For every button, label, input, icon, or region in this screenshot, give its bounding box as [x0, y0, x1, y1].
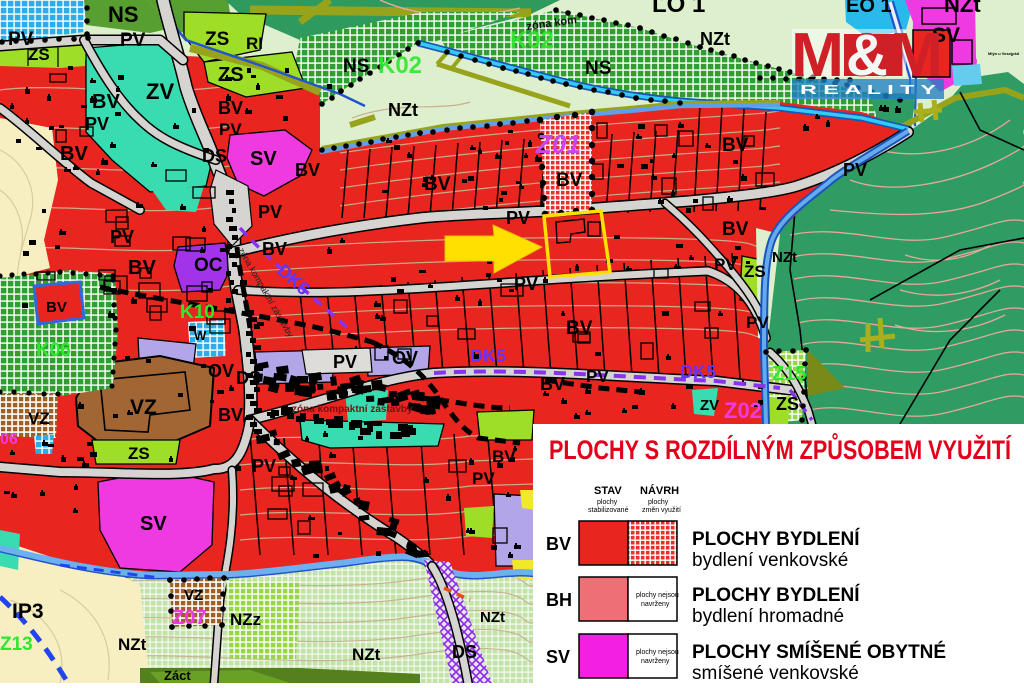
svg-text:VZ: VZ	[184, 587, 203, 604]
svg-text:NZt: NZt	[352, 645, 381, 664]
svg-text:SV: SV	[140, 513, 167, 535]
svg-text:BV: BV	[60, 143, 88, 165]
svg-text:BV: BV	[424, 174, 451, 195]
svg-text:ZS: ZS	[128, 444, 150, 463]
svg-text:BV: BV	[722, 135, 749, 156]
svg-text:BV: BV	[92, 91, 120, 113]
svg-text:NZt: NZt	[388, 100, 418, 120]
svg-text:navrženy: navrženy	[641, 658, 670, 665]
svg-text:PV: PV	[714, 255, 737, 274]
svg-text:Z01: Z01	[535, 129, 581, 159]
svg-text:PLOCHY S ROZDÍLNÝM ZPŮSOBEM VY: PLOCHY S ROZDÍLNÝM ZPŮSOBEM VYUŽITÍ	[549, 432, 1012, 465]
svg-text:DK5: DK5	[680, 362, 716, 382]
svg-text:K10: K10	[180, 302, 215, 323]
svg-text:RI: RI	[246, 34, 263, 53]
svg-text:&: &	[846, 23, 888, 88]
svg-text:ĽO 1: ĽO 1	[652, 0, 705, 18]
svg-text:bydlení hromadné: bydlení hromadné	[692, 606, 844, 627]
svg-text:PV: PV	[514, 274, 538, 294]
svg-text:PLOCHY BYDLENÍ: PLOCHY BYDLENÍ	[692, 528, 860, 550]
svg-text:NS: NS	[108, 2, 139, 27]
svg-text:K02: K02	[378, 52, 422, 79]
svg-text:PLOCHY SMÍŠENÉ OBYTNÉ: PLOCHY SMÍŠENÉ OBYTNÉ	[692, 641, 946, 663]
svg-text:BV: BV	[46, 299, 67, 316]
svg-text:BV: BV	[492, 447, 516, 466]
svg-text:Z02: Z02	[724, 398, 762, 423]
svg-text:plochy: plochy	[597, 499, 618, 506]
svg-text:DK5: DK5	[470, 346, 506, 366]
svg-text:BV: BV	[295, 160, 320, 180]
svg-text:OV: OV	[392, 348, 418, 368]
svg-text:BV: BV	[218, 405, 243, 425]
svg-text:PV: PV	[120, 30, 146, 51]
svg-text:ZV: ZV	[700, 397, 719, 414]
svg-text:BV: BV	[128, 257, 156, 279]
svg-text:smíšené venkovské: smíšené venkovské	[692, 663, 859, 683]
svg-text:BV: BV	[540, 374, 565, 394]
svg-text:Z13: Z13	[0, 634, 33, 655]
svg-text:NZt: NZt	[118, 635, 147, 654]
svg-text:Z15: Z15	[772, 363, 806, 385]
svg-text:PV: PV	[258, 202, 282, 222]
svg-text:PV: PV	[85, 114, 109, 134]
svg-text:K02: K02	[510, 27, 554, 54]
svg-text:ZS: ZS	[744, 262, 766, 281]
svg-text:PV: PV	[333, 352, 357, 372]
svg-text:K06: K06	[36, 340, 71, 361]
svg-text:NZt: NZt	[944, 0, 981, 17]
svg-text:NÁVRH: NÁVRH	[640, 484, 679, 497]
svg-text:NZt: NZt	[700, 29, 730, 49]
svg-text:Záct: Záct	[164, 668, 191, 683]
svg-text:PV: PV	[843, 160, 867, 180]
svg-text:06: 06	[0, 431, 18, 448]
svg-text:Z07: Z07	[172, 607, 206, 629]
svg-text:PV: PV	[110, 227, 134, 247]
svg-text:zóna kompaktní zástavby: zóna kompaktní zástavby	[292, 404, 413, 415]
svg-text:změn využití: změn využití	[642, 507, 681, 514]
svg-text:BV: BV	[556, 170, 583, 191]
svg-text:NS: NS	[343, 56, 369, 77]
svg-text:PV: PV	[252, 456, 276, 476]
svg-text:BV: BV	[722, 219, 749, 240]
svg-text:PV: PV	[506, 208, 530, 228]
svg-text:bydlení venkovské: bydlení venkovské	[692, 550, 848, 571]
svg-text:BH: BH	[546, 590, 572, 610]
svg-text:navrženy: navrženy	[641, 601, 670, 608]
svg-text:BV: BV	[546, 534, 571, 554]
svg-text:PV: PV	[746, 313, 769, 332]
svg-text:ZS: ZS	[205, 29, 229, 50]
svg-text:VZ: VZ	[28, 409, 50, 428]
svg-text:BV: BV	[566, 318, 593, 339]
svg-text:R E A L I T Y: R E A L I T Y	[800, 82, 937, 97]
svg-text:OC: OC	[194, 255, 223, 276]
svg-text:BV: BV	[218, 98, 243, 118]
svg-text:plochy nejsou: plochy nejsou	[636, 592, 679, 599]
svg-text:SV: SV	[546, 647, 570, 667]
svg-text:W: W	[194, 328, 207, 343]
svg-text:PV: PV	[472, 469, 495, 488]
svg-text:DS: DS	[202, 146, 227, 166]
svg-text:EO 1: EO 1	[846, 0, 892, 17]
svg-text:ZS: ZS	[28, 45, 50, 64]
svg-text:PV: PV	[219, 120, 242, 139]
svg-text:OV: OV	[208, 361, 234, 381]
svg-text:NS: NS	[585, 58, 611, 79]
svg-text:PLOCHY BYDLENÍ: PLOCHY BYDLENÍ	[692, 584, 860, 606]
svg-text:SV: SV	[250, 148, 277, 170]
svg-text:plochy: plochy	[648, 499, 669, 506]
svg-text:DS: DS	[452, 642, 477, 662]
svg-text:plochy nejsou: plochy nejsou	[636, 649, 679, 656]
svg-text:NZt: NZt	[480, 609, 505, 626]
svg-text:VZ: VZ	[130, 396, 157, 419]
svg-text:ZS: ZS	[218, 64, 244, 86]
svg-text:PV: PV	[586, 367, 609, 386]
svg-text:DS: DS	[236, 368, 261, 388]
svg-text:ZS: ZS	[776, 394, 799, 414]
svg-text:IP3: IP3	[12, 600, 44, 623]
svg-text:stabilizované: stabilizované	[588, 507, 629, 514]
svg-text:BV: BV	[262, 239, 287, 259]
svg-text:STAV: STAV	[594, 485, 622, 497]
svg-text:Mlýn u Vosejpků: Mlýn u Vosejpků	[988, 51, 1020, 56]
svg-text:NZz: NZz	[230, 610, 261, 629]
svg-text:ZV: ZV	[146, 79, 174, 104]
svg-text:NZt: NZt	[772, 249, 797, 266]
